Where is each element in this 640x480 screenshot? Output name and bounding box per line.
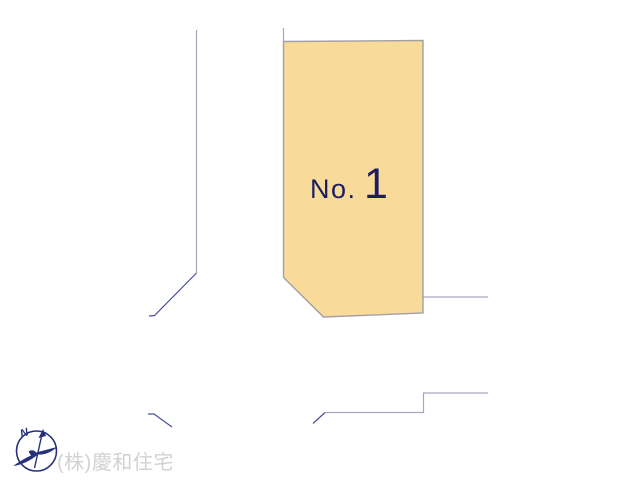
lot-label-prefix: No. bbox=[310, 174, 357, 204]
lot-label-number: 1 bbox=[364, 160, 388, 208]
lot-layout-diagram: No. 1 (株)慶和住宅 N bbox=[0, 0, 640, 480]
site-plan-canvas: No. 1 (株)慶和住宅 N bbox=[0, 0, 640, 480]
company-credit-text: (株)慶和住宅 bbox=[57, 451, 174, 474]
